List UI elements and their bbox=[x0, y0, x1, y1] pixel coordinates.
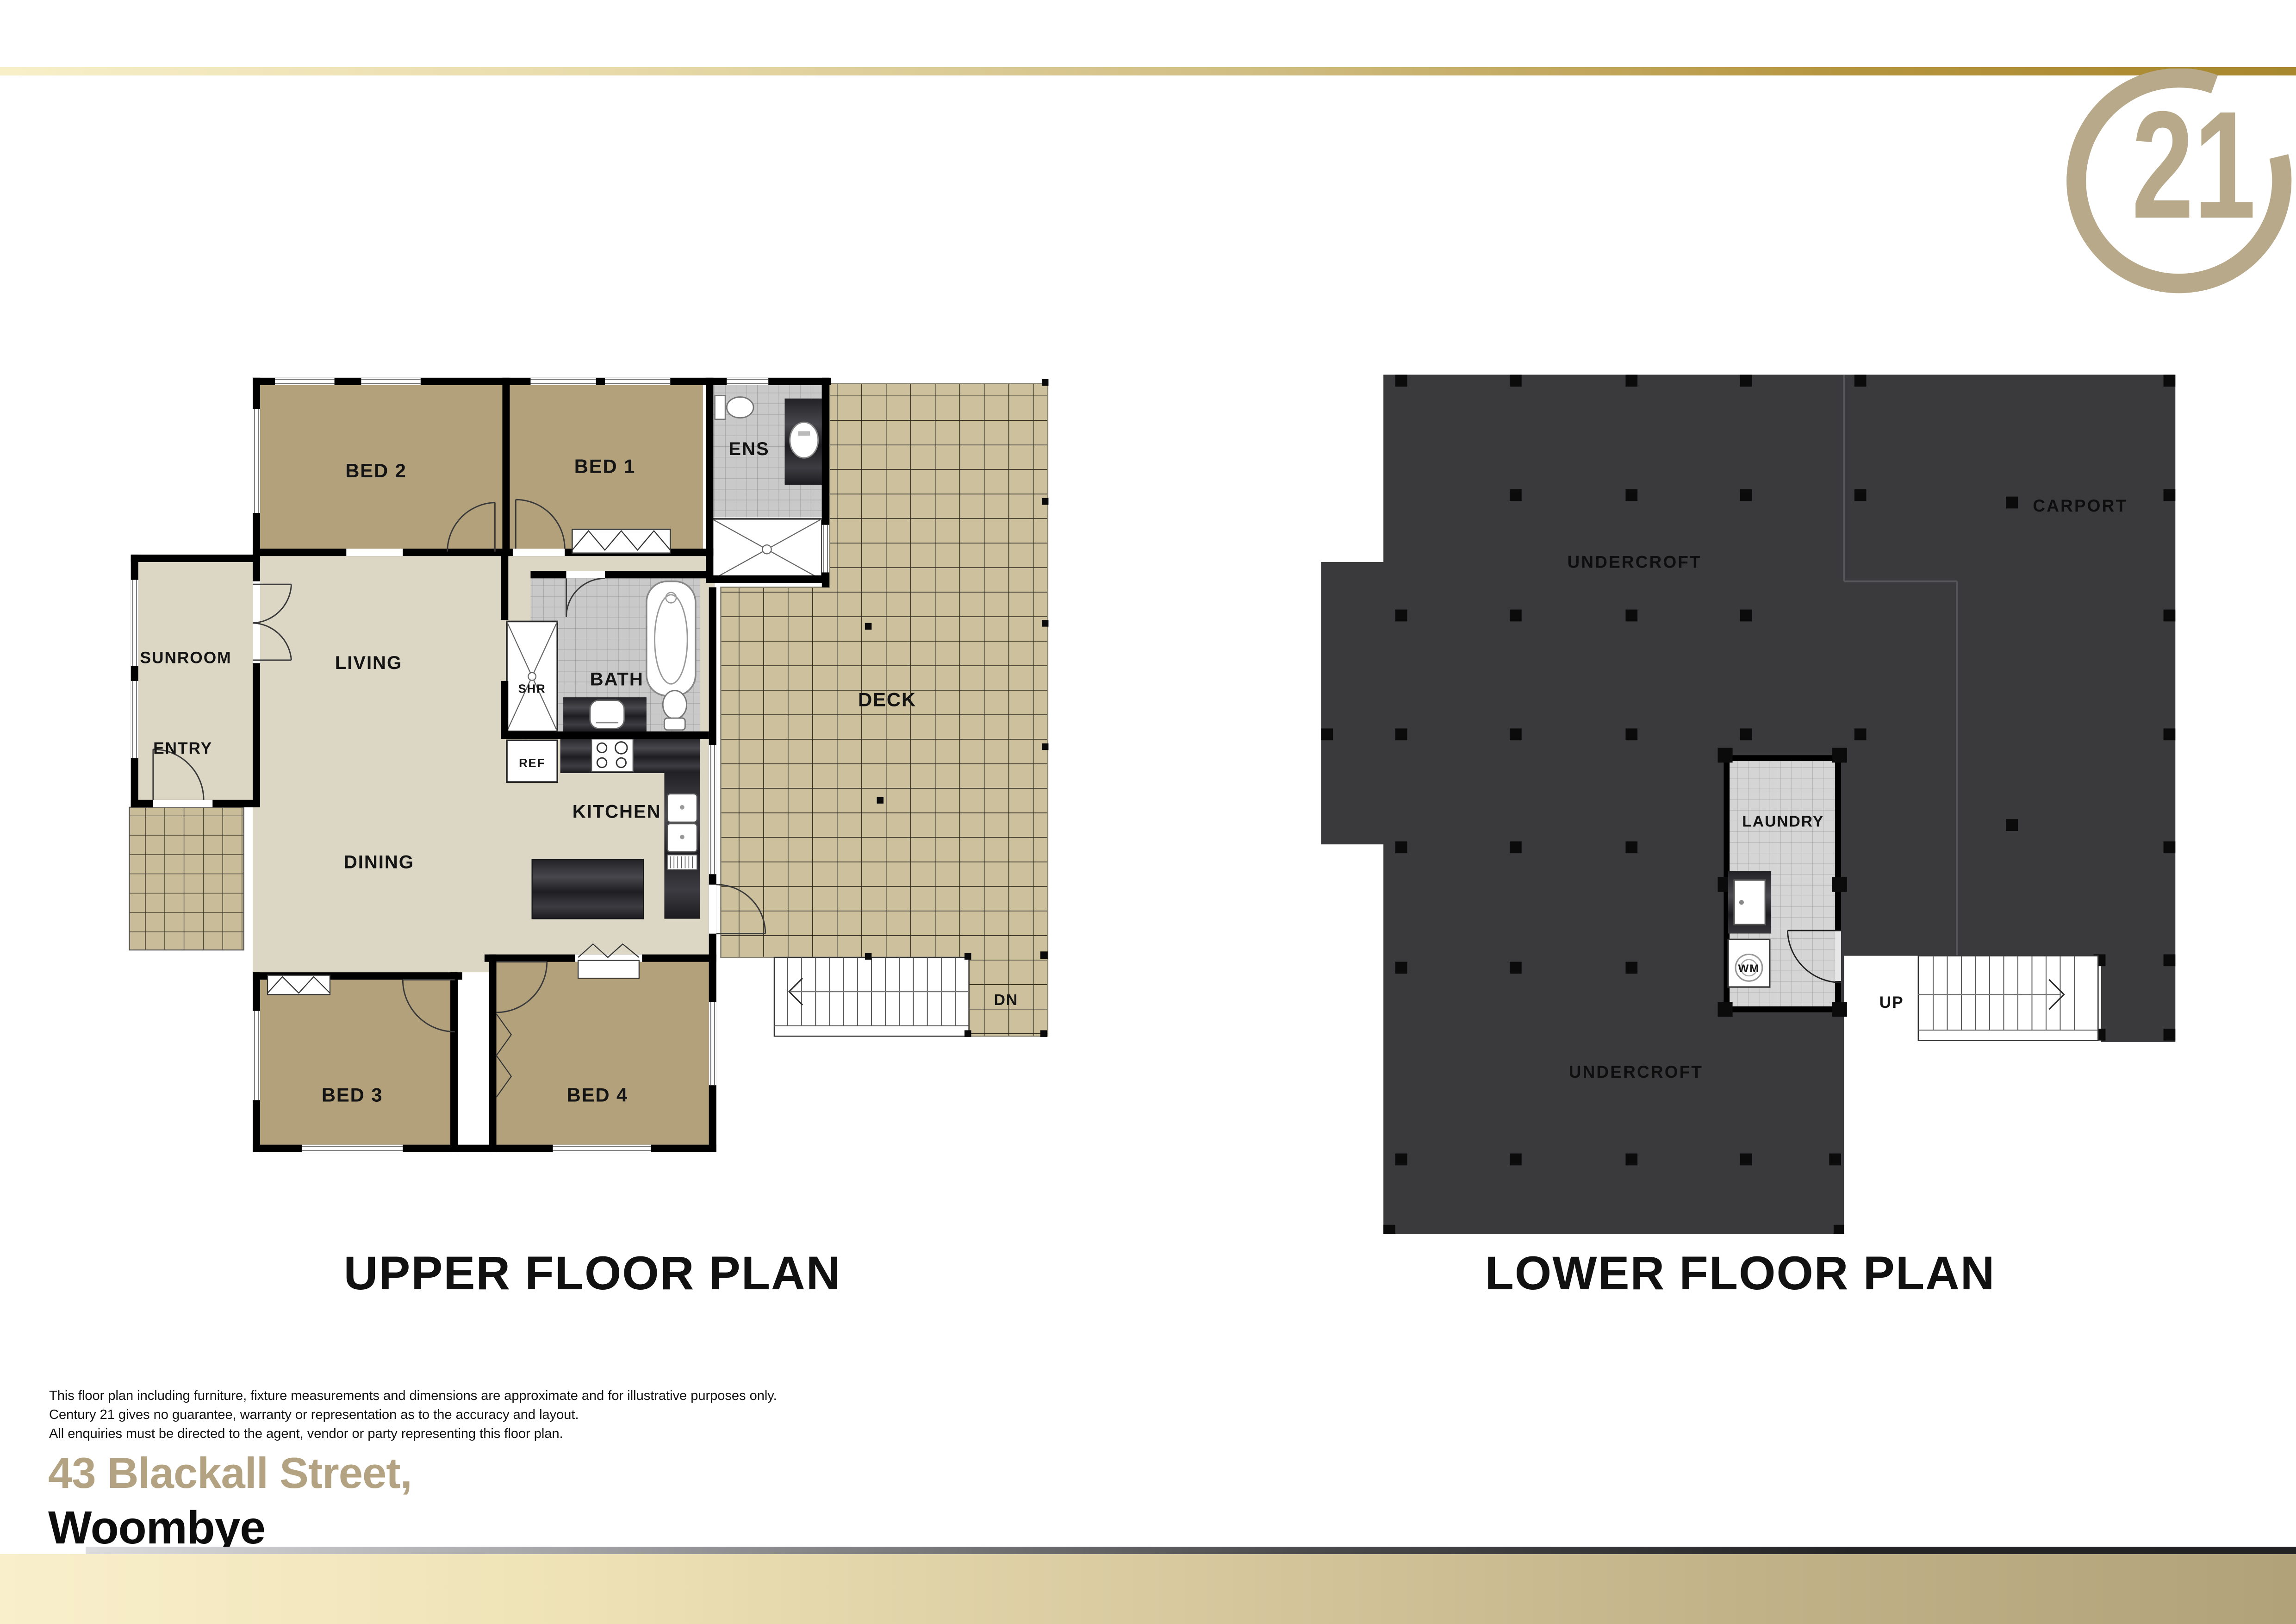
logo-numeral: 21 bbox=[2132, 79, 2256, 250]
upper-plan-title: UPPER FLOOR PLAN bbox=[106, 1246, 1078, 1300]
laundry-room bbox=[1718, 748, 1847, 1017]
room-label-bed2: BED 2 bbox=[345, 460, 407, 481]
top-gradient-bar bbox=[0, 0, 2296, 67]
address-line-1: 43 Blackall Street, bbox=[48, 1448, 412, 1498]
upper-floor-plan: BED 2 BED 1 ENS SUNROOM LIVING ENTRY BAT… bbox=[126, 372, 1063, 1189]
room-label-entry: ENTRY bbox=[153, 739, 212, 757]
top-gold-strip bbox=[0, 67, 2296, 75]
disclaimer-line-3: All enquiries must be directed to the ag… bbox=[49, 1424, 777, 1443]
room-label-carport: CARPORT bbox=[2033, 496, 2128, 515]
bath-basin-icon bbox=[590, 700, 624, 729]
room-label-kitchen: KITCHEN bbox=[572, 801, 661, 822]
century21-logo-icon: 21 bbox=[2062, 69, 2296, 309]
room-label-bath: BATH bbox=[590, 669, 644, 690]
ens-shower bbox=[712, 519, 822, 580]
room-label-living: LIVING bbox=[335, 652, 402, 673]
room-label-undercroft-bottom: UNDERCROFT bbox=[1569, 1062, 1703, 1081]
disclaimer: This floor plan including furniture, fix… bbox=[49, 1387, 777, 1443]
room-label-bed3: BED 3 bbox=[322, 1084, 383, 1106]
bottom-gold-bar bbox=[0, 1554, 2296, 1624]
room-label-ref: REF bbox=[519, 757, 545, 770]
lower-floor-plan: UNDERCROFT CARPORT LAUNDRY WM UP UNDERCR… bbox=[1278, 372, 2214, 1234]
room-label-dining: DINING bbox=[344, 851, 414, 872]
ens-toilet-tank bbox=[715, 395, 725, 419]
room-label-up: UP bbox=[1879, 993, 1904, 1012]
bed3-floor bbox=[257, 980, 455, 1152]
room-label-bed4: BED 4 bbox=[567, 1084, 628, 1106]
bath-toilet-icon bbox=[663, 691, 686, 719]
disclaimer-line-2: Century 21 gives no guarantee, warranty … bbox=[49, 1405, 777, 1424]
stove-icon bbox=[591, 739, 633, 772]
room-label-deck: DECK bbox=[858, 688, 916, 710]
up-stairs bbox=[1918, 956, 2098, 1041]
bottom-gray-strip bbox=[86, 1547, 2296, 1554]
room-label-ens: ENS bbox=[728, 438, 769, 459]
room-label-bed1: BED 1 bbox=[574, 455, 636, 477]
room-label-dn: DN bbox=[994, 991, 1019, 1009]
lower-plan-title: LOWER FLOOR PLAN bbox=[1254, 1246, 2226, 1300]
laundry-tub-icon bbox=[1734, 880, 1765, 924]
porch-floor bbox=[129, 807, 243, 950]
room-label-undercroft-top: UNDERCROFT bbox=[1568, 553, 1702, 572]
bathtub-icon bbox=[647, 581, 696, 696]
room-label-shr: SHR bbox=[518, 683, 546, 696]
dn-stairs bbox=[774, 957, 969, 1036]
room-label-sunroom: SUNROOM bbox=[140, 649, 232, 667]
room-label-laundry: LAUNDRY bbox=[1742, 812, 1824, 830]
bed4-floor bbox=[497, 961, 712, 1152]
bath-shower bbox=[507, 621, 557, 731]
ens-toilet-icon bbox=[727, 397, 753, 418]
disclaimer-line-1: This floor plan including furniture, fix… bbox=[49, 1387, 777, 1405]
kitchen-island bbox=[532, 859, 644, 918]
ens-basin-icon bbox=[790, 422, 818, 458]
room-label-wm: WM bbox=[1738, 962, 1760, 975]
page: 21 bbox=[0, 0, 2296, 1624]
